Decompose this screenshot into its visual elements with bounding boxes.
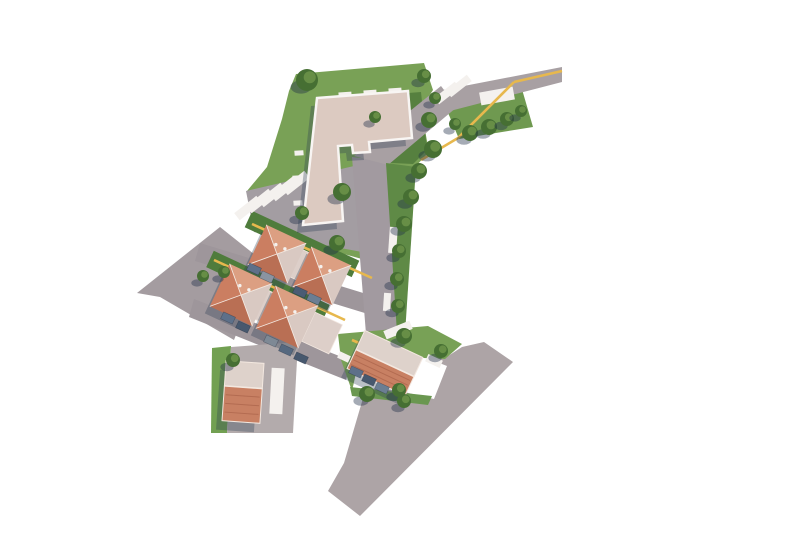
tree-highlight	[519, 106, 526, 113]
tree-highlight	[439, 345, 447, 353]
terrace-row-middle-unit-dormer	[238, 284, 241, 287]
tree-highlight	[201, 271, 208, 278]
tree-highlight	[453, 119, 460, 126]
tree-highlight	[397, 245, 405, 253]
tree-highlight	[395, 273, 403, 281]
tree-highlight	[304, 71, 316, 83]
site-plan-canvas	[0, 0, 800, 533]
balcony	[294, 150, 303, 156]
tree-highlight	[396, 300, 404, 308]
terrace-row-middle-unit-dormer	[293, 310, 296, 313]
tree-highlight	[335, 237, 344, 246]
terrace-row-middle-unit-dormer	[284, 306, 287, 309]
terrace-row-top-unit-dormer	[319, 265, 322, 268]
terrace-row-middle-unit-dormer	[247, 288, 250, 291]
tree-highlight	[422, 70, 430, 78]
terrace-row-top-unit-dormer	[274, 243, 277, 246]
terrace-row-top-unit-dormer	[328, 269, 331, 272]
tree-highlight	[222, 267, 229, 274]
tree-highlight	[402, 395, 410, 403]
tree-highlight	[409, 191, 418, 200]
tree-highlight	[417, 165, 426, 174]
tree-highlight	[427, 114, 436, 123]
tree-highlight	[300, 207, 308, 215]
tree-highlight	[433, 93, 440, 100]
tree-highlight	[468, 127, 477, 136]
tree-highlight	[373, 112, 380, 119]
tree-highlight	[402, 330, 411, 339]
terrace-row-top-unit-dormer	[283, 247, 286, 250]
tree-highlight	[430, 142, 440, 152]
sidewalk-strip	[383, 293, 391, 311]
tree-highlight	[365, 388, 374, 397]
driveway-strip	[269, 368, 284, 415]
balcony	[292, 175, 301, 181]
site-plan-rendering	[0, 0, 800, 533]
tree-highlight	[402, 218, 411, 227]
tree-highlight	[339, 185, 349, 195]
tree-highlight	[487, 121, 496, 130]
tree-highlight	[397, 384, 405, 392]
tree-highlight	[231, 354, 239, 362]
